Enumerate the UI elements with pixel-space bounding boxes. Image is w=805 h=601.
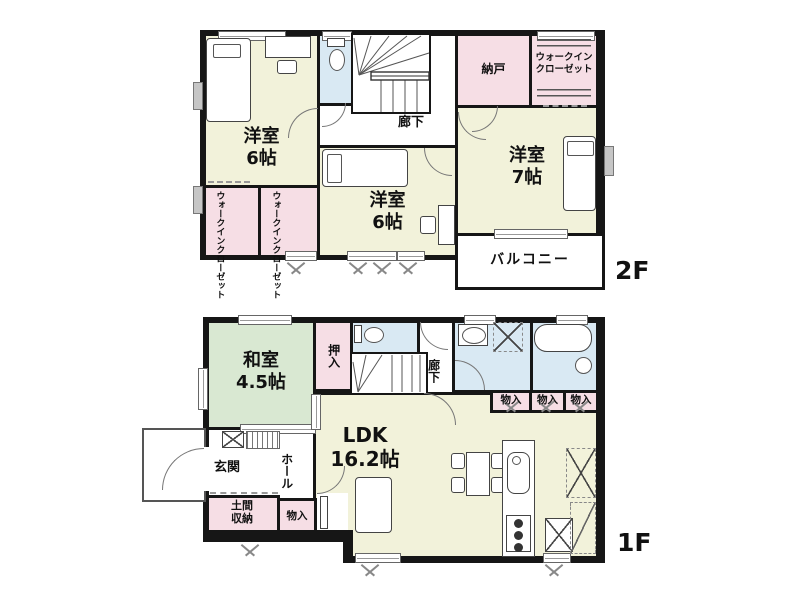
room-label-bedroom-c: 洋室 7帖 xyxy=(455,145,599,189)
room-label-hallway-1f: 廊下 xyxy=(426,354,441,388)
stairs-1f-icon xyxy=(350,352,428,395)
toilet-tank-icon xyxy=(327,38,345,47)
desk-icon xyxy=(265,36,311,58)
room-label-hallway-2f: 廊下 xyxy=(398,115,424,131)
hanger-pipe-icon xyxy=(537,89,591,101)
room-label-hall: ホール xyxy=(279,446,294,496)
vent-mark-icon xyxy=(362,564,378,577)
room-label-monoire: 物入 xyxy=(277,510,317,523)
room-label-storage-1: 物入 xyxy=(490,394,532,407)
room-label-wic-left-2: ウォークインクローゼット xyxy=(268,191,282,255)
room-label-storage-3: 物入 xyxy=(563,394,599,407)
room-label-wic-left-1: ウォークインクローゼット xyxy=(212,191,226,255)
pillow-icon xyxy=(213,44,241,58)
window xyxy=(355,553,401,563)
toilet-bowl-icon xyxy=(364,327,384,343)
room-label-washitsu: 和室 4.5帖 xyxy=(206,350,316,394)
floor-label-2f: 2F xyxy=(615,256,649,287)
stove-icon xyxy=(506,515,531,552)
wic-opening xyxy=(543,105,587,109)
shutter-box-icon xyxy=(193,82,203,110)
shoe-cabinet-icon xyxy=(222,431,244,448)
room-label-wic-right: ウォークイン クローゼット xyxy=(529,52,599,75)
floor-label-1f: 1F xyxy=(617,528,651,559)
room-label-bedroom-a: 洋室 6帖 xyxy=(203,126,320,170)
sofa-icon xyxy=(355,477,392,533)
window xyxy=(347,251,397,261)
room-label-genkan: 玄関 xyxy=(214,460,240,476)
burner-icon xyxy=(514,519,523,528)
faucet-icon xyxy=(512,456,521,465)
floor-plan-page: { "colors": { "wall": "#161616", "wester… xyxy=(0,0,805,601)
window xyxy=(285,251,317,261)
bath-stool-icon xyxy=(575,357,592,374)
window xyxy=(397,251,425,261)
room-label-nando: 納戸 xyxy=(455,62,532,77)
room-label-bedroom-b: 洋室 6帖 xyxy=(317,190,458,234)
bathtub-icon xyxy=(534,324,592,352)
hanger-pipe-icon xyxy=(537,39,591,51)
refrigerator-icon xyxy=(545,518,573,552)
toilet-tank-icon xyxy=(354,325,362,343)
tv-board-icon xyxy=(320,496,328,529)
chair-icon xyxy=(451,477,465,493)
room-label-doma: 土間 収納 xyxy=(208,499,276,526)
pillow-icon xyxy=(327,154,342,183)
wic-opening xyxy=(208,181,250,185)
vent-mark-icon xyxy=(288,262,304,275)
toilet-bowl-icon xyxy=(329,49,345,71)
burner-icon xyxy=(514,531,523,540)
chair-icon xyxy=(277,60,297,74)
shutter-box-icon xyxy=(193,186,203,214)
stairs-2f-icon xyxy=(351,33,431,114)
room-label-balcony: バルコニー xyxy=(455,252,605,269)
window xyxy=(543,553,571,563)
planned-fixture-icon xyxy=(570,502,596,554)
window xyxy=(238,315,292,325)
sink-basin-icon xyxy=(462,327,486,344)
vent-mark-icon xyxy=(400,262,416,275)
exterior xyxy=(195,542,345,582)
burner-icon xyxy=(514,543,523,552)
vent-mark-icon xyxy=(242,544,258,557)
chair-icon xyxy=(451,453,465,469)
planned-cupboard-icon xyxy=(566,448,596,498)
room-label-oshiire: 押入 xyxy=(326,331,341,381)
entrance-step-icon xyxy=(246,431,280,449)
wall-segment xyxy=(343,530,353,563)
window xyxy=(494,229,568,239)
washer-pan-icon xyxy=(493,322,523,352)
room-label-ldk: LDK 16.2帖 xyxy=(315,423,415,472)
vent-mark-icon xyxy=(374,262,390,275)
vent-mark-icon xyxy=(546,564,562,577)
entrance-step-line xyxy=(210,492,278,496)
vent-mark-icon xyxy=(350,262,366,275)
dining-table-icon xyxy=(466,452,490,496)
shutter-box-icon xyxy=(604,146,614,176)
wall-segment xyxy=(203,530,353,542)
room-label-storage-2: 物入 xyxy=(529,394,566,407)
